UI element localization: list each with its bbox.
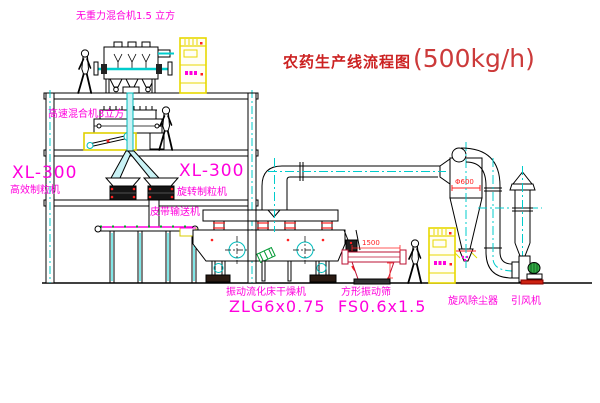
control-cabinet-lower [429, 228, 455, 283]
dim-sieve-length: 1500 [362, 240, 380, 247]
label-granulator-right-name: 旋转制粒机 [177, 188, 227, 198]
title-chinese: 农药生产线流程图 [283, 51, 411, 72]
fluid-bed-dryer [193, 210, 345, 282]
diagram-title: 农药生产线流程图 (500kg/h) [283, 44, 535, 73]
label-speed-mixer: 高速混合机3立方 [48, 110, 124, 120]
label-granulator-left-model: XL-300 [12, 165, 77, 182]
label-gravity-mixer: 无重力混合机1.5 立方 [76, 12, 175, 22]
title-capacity: (500kg/h) [413, 44, 535, 73]
label-belt-conveyor: 皮带输送机 [150, 208, 200, 218]
feed-down-pipe [127, 93, 133, 151]
big-duct-centerline [493, 158, 514, 271]
dim-cyclone-diameter: Φ600 [455, 179, 474, 186]
worker-figure-top-floor [78, 50, 91, 93]
label-fan: 引风机 [511, 297, 541, 307]
exhaust-duct [262, 159, 450, 210]
induced-draft-fan [512, 256, 543, 284]
label-sieve-model: FS0.6x1.5 [338, 299, 426, 315]
worker-figure-ground [408, 240, 421, 283]
gravity-free-mixer [94, 42, 174, 93]
label-dryer-model: ZLG6x0.75 [229, 299, 326, 315]
label-cyclone: 旋风除尘器 [448, 297, 498, 307]
label-granulator-left-name: 高效制粒机 [10, 186, 60, 196]
flow-diagram-canvas: 农药生产线流程图 (500kg/h) 无重力混合机1.5 立方 高速混合机3立方… [0, 0, 600, 403]
control-cabinet-upper [180, 38, 206, 93]
label-granulator-right-model: XL-300 [179, 163, 244, 180]
